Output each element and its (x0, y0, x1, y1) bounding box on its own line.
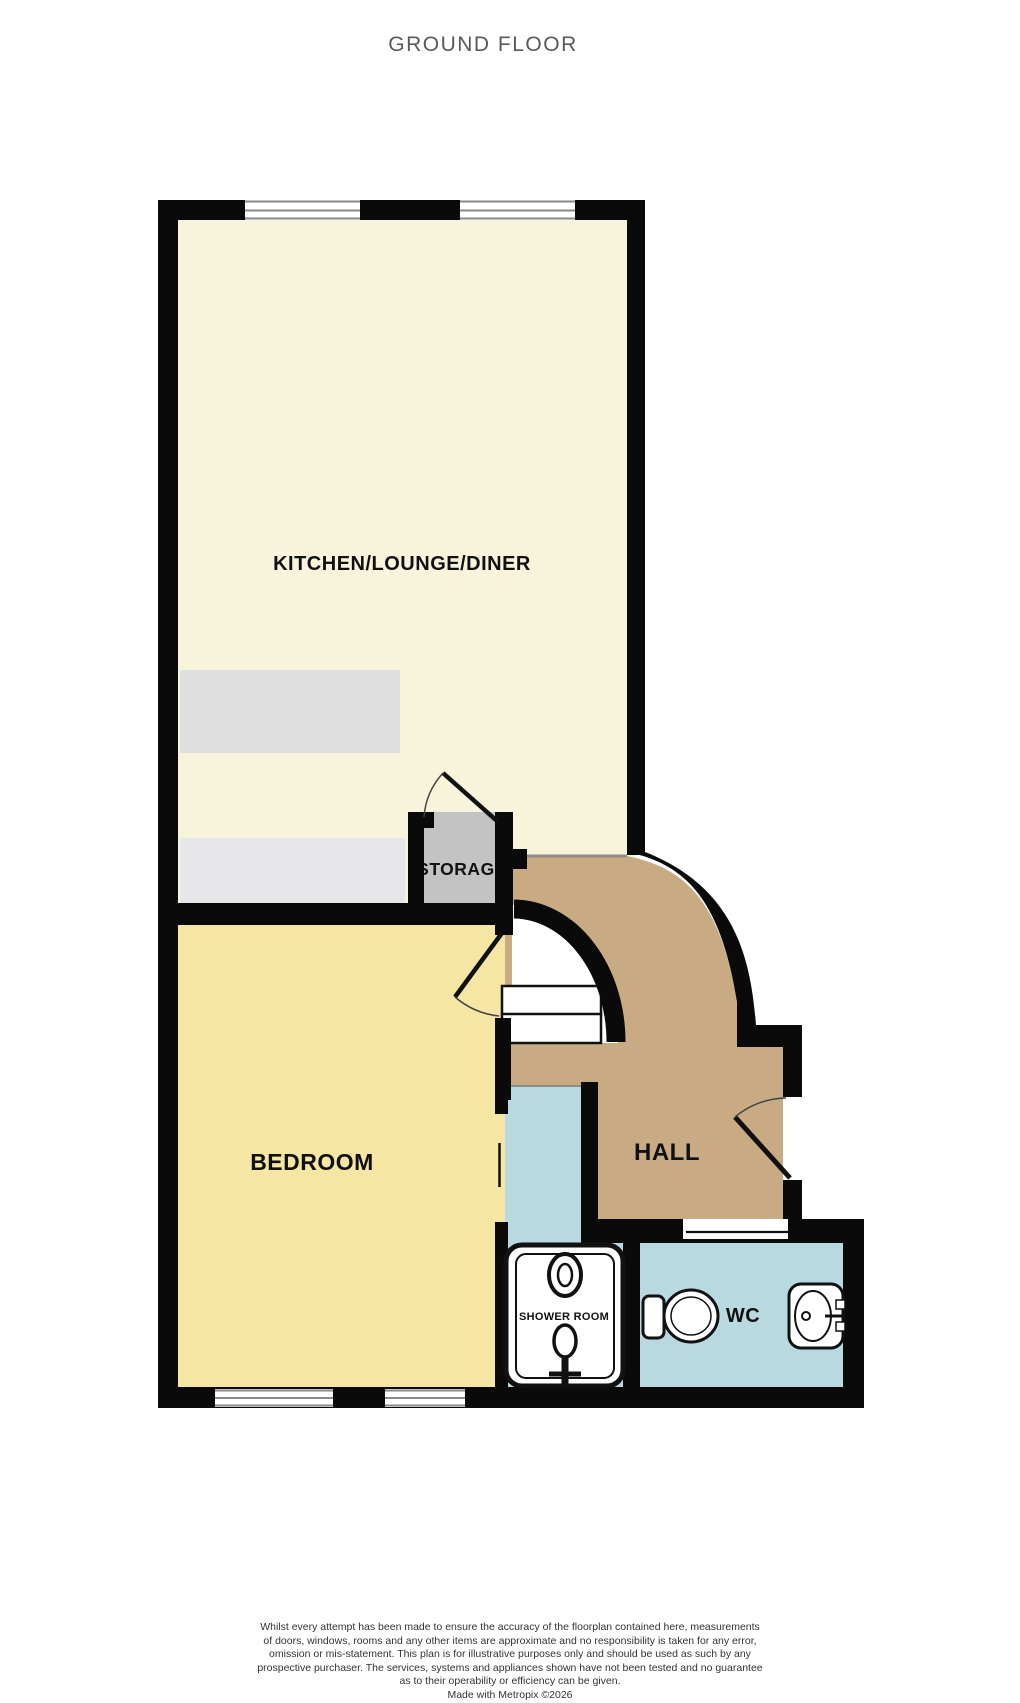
room-label-kitchen: KITCHEN/LOUNGE/DINER (273, 553, 531, 575)
floorplan-image: STORAGE (0, 0, 1020, 1703)
room-label-shower-room: SHOWER ROOM (519, 1311, 609, 1323)
window-icon (245, 200, 360, 220)
room-label-hall: HALL (634, 1139, 700, 1166)
disclaimer-line: prospective purchaser. The services, sys… (95, 1662, 925, 1676)
wc-doorway (683, 1219, 788, 1239)
disclaimer-line: Whilst every attempt has been made to en… (95, 1621, 925, 1635)
disclaimer-line: omission or mis-statement. This plan is … (95, 1648, 925, 1662)
basin-icon (789, 1284, 845, 1348)
room-label-bedroom: BEDROOM (250, 1149, 374, 1175)
disclaimer-text: Whilst every attempt has been made to en… (95, 1621, 925, 1703)
disclaimer-line: of doors, windows, rooms and any other i… (95, 1635, 925, 1649)
window-icon (385, 1389, 465, 1407)
kitchen-counter-icon (180, 670, 400, 753)
stairs-icon (502, 986, 601, 1043)
metropix-credit: Made with Metropix ©2026 (95, 1689, 925, 1703)
room-label-storage: STORAGE (417, 859, 507, 879)
floorplan-page: GROUND FLOOR STORAGE (0, 0, 1020, 1703)
kitchen-counter-icon (180, 838, 405, 903)
window-icon (215, 1389, 333, 1407)
disclaimer-line: as to their operability or efficiency ca… (95, 1675, 925, 1689)
window-icon (460, 200, 575, 220)
room-label-wc: WC (726, 1305, 760, 1327)
toilet-icon (643, 1290, 718, 1342)
